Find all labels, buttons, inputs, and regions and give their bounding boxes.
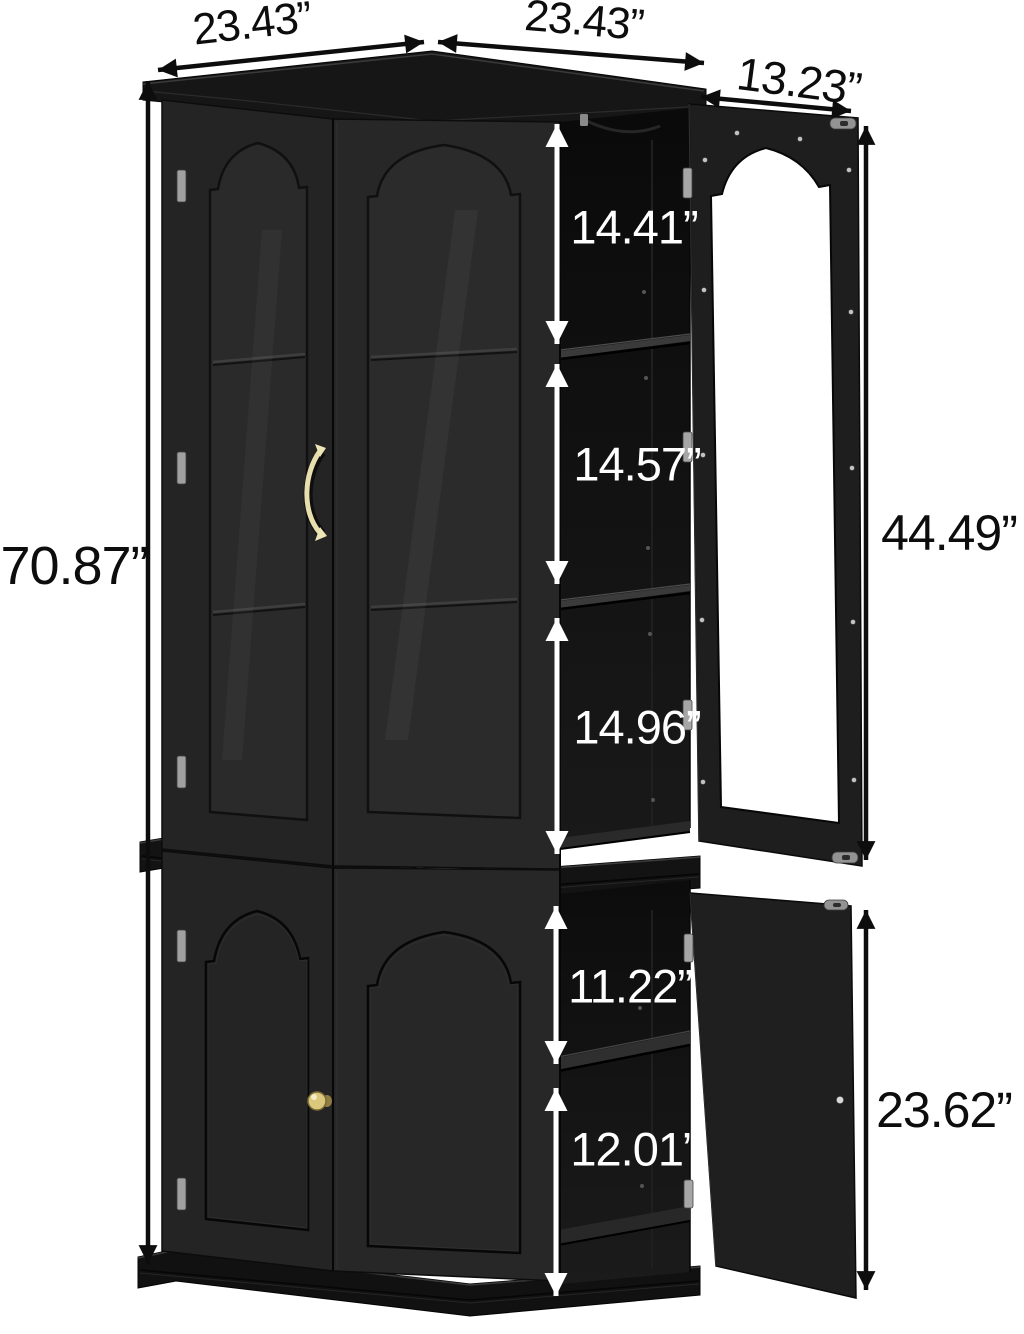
dim-label-lower-section-2: 12.01” bbox=[570, 1126, 697, 1173]
lower-front-door bbox=[333, 868, 560, 1281]
upper-open-door bbox=[683, 104, 862, 866]
dim-label-top-right-width: 23.43” bbox=[523, 0, 645, 48]
dim-label-upper-section-1: 14.41” bbox=[570, 204, 697, 251]
door-stay-bracket bbox=[580, 114, 588, 126]
cabinet-illustration bbox=[0, 0, 1024, 1334]
dim-label-lower-section-1: 11.22” bbox=[568, 963, 692, 1010]
dimension-arrows-light bbox=[556, 124, 557, 1296]
lower-left-door bbox=[162, 851, 333, 1271]
open-door-glass bbox=[711, 148, 839, 823]
lower-open-door bbox=[684, 893, 856, 1298]
knob-back-screw bbox=[837, 1097, 844, 1104]
dim-label-upper-section-3: 14.96” bbox=[573, 704, 700, 751]
dim-label-lower-door-height: 23.62” bbox=[876, 1085, 1012, 1135]
dim-label-upper-section-2: 14.57” bbox=[573, 441, 700, 488]
product-dimension-diagram: 23.43” 23.43” 13.23” 70.87” 44.49” 23.62… bbox=[0, 0, 1024, 1334]
dim-label-upper-door-height: 44.49” bbox=[881, 508, 1017, 558]
dim-label-total-height: 70.87” bbox=[0, 539, 147, 593]
lower-cabinet-interior bbox=[558, 880, 690, 1284]
upper-front-glass-door bbox=[333, 119, 560, 869]
